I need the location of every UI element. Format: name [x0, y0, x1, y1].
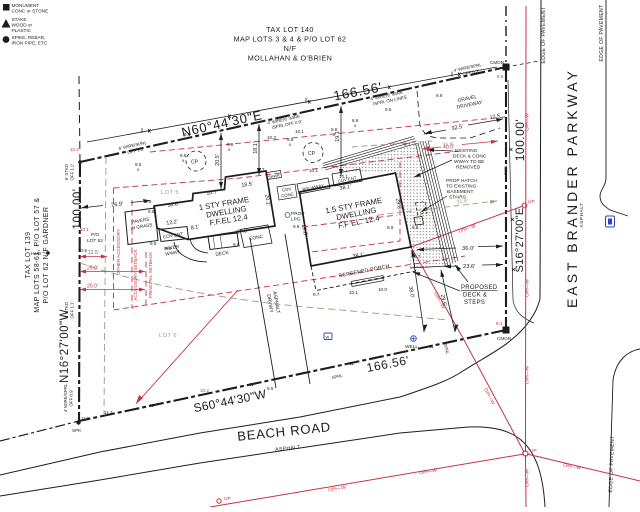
svg-text:OFF 0.9': OFF 0.9' [69, 389, 74, 406]
svg-text:CMON: CMON [490, 60, 504, 65]
svg-text:CP: CP [191, 160, 199, 166]
svg-text:ACCESSORY SETBACK: ACCESSORY SETBACK [133, 248, 138, 300]
svg-text:UP: UP [530, 448, 537, 454]
svg-text:LOT 62: LOT 62 [87, 238, 103, 244]
svg-text:P/O: P/O [91, 232, 100, 238]
svg-text:23.6': 23.6' [463, 264, 475, 270]
svg-text:25.0': 25.0' [87, 266, 98, 272]
svg-text:9.5: 9.5 [385, 107, 392, 112]
svg-text:9.9: 9.9 [387, 225, 394, 230]
svg-text:UP: UP [528, 199, 535, 205]
svg-text:O/H—W: O/H—W [525, 469, 531, 487]
svg-text:PROP HATCH: PROP HATCH [446, 178, 478, 184]
svg-text:O/H—W: O/H—W [525, 366, 531, 384]
svg-text:CONC or STONE: CONC or STONE [12, 9, 49, 14]
svg-text:PLASTIC: PLASTIC [12, 28, 32, 33]
svg-text:EDGE OF PAVEMENT: EDGE OF PAVEMENT [541, 6, 547, 63]
svg-text:EXISTING: EXISTING [455, 148, 478, 154]
svg-text:ASPHALT: ASPHALT [579, 202, 585, 227]
svg-text:9.9: 9.9 [165, 246, 172, 251]
svg-text:OFF 1.2': OFF 1.2' [70, 163, 75, 180]
svg-text:10.2: 10.2 [70, 147, 79, 152]
svg-text:S16°27'00"E: S16°27'00"E [514, 207, 526, 272]
svg-text:HUB: HUB [31, 251, 41, 257]
svg-text:8.7: 8.7 [414, 254, 421, 259]
svg-text:18.1': 18.1' [253, 142, 259, 154]
svg-text:WWAY TO BE: WWAY TO BE [454, 159, 484, 165]
svg-text:9.9: 9.9 [148, 209, 155, 214]
svg-text:LPG: LPG [291, 217, 301, 223]
svg-text:CP: CP [308, 151, 316, 157]
svg-text:20.0': 20.0' [87, 284, 98, 290]
svg-text:9.8: 9.8 [436, 93, 443, 98]
svg-text:9.7: 9.7 [313, 292, 320, 297]
svg-text:10.5: 10.5 [78, 248, 87, 253]
svg-text:11.5: 11.5 [81, 416, 90, 421]
svg-text:LOT 6: LOT 6 [159, 333, 177, 339]
svg-text:REMOVED: REMOVED [456, 165, 481, 171]
svg-text:4' WIRE/SPRL: 4' WIRE/SPRL [63, 383, 68, 412]
svg-text:SPK: SPK [72, 428, 82, 433]
svg-text:P/O LOT 62 N/F GARDNER: P/O LOT 62 N/F GARDNER [43, 206, 50, 303]
svg-text:O/H—W: O/H—W [525, 113, 531, 131]
svg-text:CMON: CMON [497, 336, 511, 341]
svg-text:10.3: 10.3 [267, 135, 276, 140]
svg-text:9.7: 9.7 [404, 142, 411, 147]
svg-text:9.8: 9.8 [233, 242, 240, 247]
svg-text:EAST BRANDER PARKWAY: EAST BRANDER PARKWAY [564, 68, 580, 308]
svg-text:9.6: 9.6 [412, 225, 419, 230]
svg-text:OFF 1.1': OFF 1.1' [70, 301, 75, 318]
svg-text:MONUMENT: MONUMENT [12, 3, 40, 8]
svg-text:10.2: 10.2 [200, 388, 209, 393]
svg-text:EDGE OF PAVEMENT: EDGE OF PAVEMENT [599, 4, 605, 61]
svg-text:O/H—W: O/H—W [525, 279, 531, 297]
svg-text:UP: UP [224, 496, 231, 502]
svg-text:DECK & CONC: DECK & CONC [453, 154, 487, 160]
svg-text:LOT 5: LOT 5 [161, 190, 179, 196]
svg-text:20.5': 20.5' [215, 154, 221, 166]
svg-text:11.3: 11.3 [104, 410, 113, 415]
svg-text:9.5: 9.5 [267, 386, 274, 391]
svg-text:MAP LOTS 3 & 4 & P/O LOT 62: MAP LOTS 3 & 4 & P/O LOT 62 [234, 35, 347, 44]
svg-text:BASEMENT: BASEMENT [447, 189, 473, 195]
svg-text:PROPOSED: PROPOSED [461, 285, 498, 291]
svg-text:IRON PIPE, ETC: IRON PIPE, ETC [12, 41, 48, 46]
svg-text:9.9: 9.9 [293, 224, 300, 229]
svg-text:WELL: WELL [405, 344, 418, 350]
svg-text:N16°27'00"W: N16°27'00"W [59, 309, 71, 383]
svg-text:STEPS: STEPS [464, 300, 485, 306]
svg-text:9.9: 9.9 [150, 241, 157, 246]
svg-text:STAKE: STAKE [12, 17, 27, 22]
svg-text:10.1: 10.1 [339, 174, 348, 179]
svg-text:100.00': 100.00' [72, 189, 84, 230]
svg-text:10.1: 10.1 [349, 290, 358, 295]
svg-text:SPIKE, REBAR,: SPIKE, REBAR, [12, 35, 46, 40]
svg-text:10.1: 10.1 [80, 227, 89, 232]
svg-text:10.1: 10.1 [309, 168, 318, 173]
svg-text:SPRL: SPRL [503, 164, 508, 175]
svg-text:TO EXISTING: TO EXISTING [446, 184, 477, 190]
svg-text:6' STKD: 6' STKD [64, 302, 69, 318]
svg-text:N/F: N/F [284, 44, 297, 53]
svg-text:WOOD or: WOOD or [12, 23, 33, 28]
svg-text:W: W [326, 335, 330, 340]
svg-text:9.8: 9.8 [145, 199, 152, 204]
svg-text:8.4: 8.4 [496, 321, 503, 326]
svg-text:10.0: 10.0 [378, 287, 387, 292]
svg-text:36.0': 36.0' [462, 246, 474, 252]
svg-text:12.5': 12.5' [88, 250, 99, 256]
svg-text:PROP: PROP [291, 211, 305, 217]
svg-text:PRINCIPAL SETBACK: PRINCIPAL SETBACK [148, 251, 153, 298]
svg-text:6' STKD: 6' STKD [64, 164, 69, 180]
svg-text:8.6: 8.6 [497, 74, 504, 79]
svg-text:MOLLAHAN & O'BRIEN: MOLLAHAN & O'BRIEN [248, 54, 332, 63]
svg-text:9.6: 9.6 [184, 132, 191, 137]
svg-text:OTHER ACCESSORY: OTHER ACCESSORY [116, 229, 121, 275]
svg-text:9.7: 9.7 [258, 167, 265, 172]
svg-text:10.1: 10.1 [295, 129, 304, 134]
svg-text:TAX LOT 140: TAX LOT 140 [266, 25, 314, 34]
svg-text:DECK &: DECK & [463, 293, 487, 299]
